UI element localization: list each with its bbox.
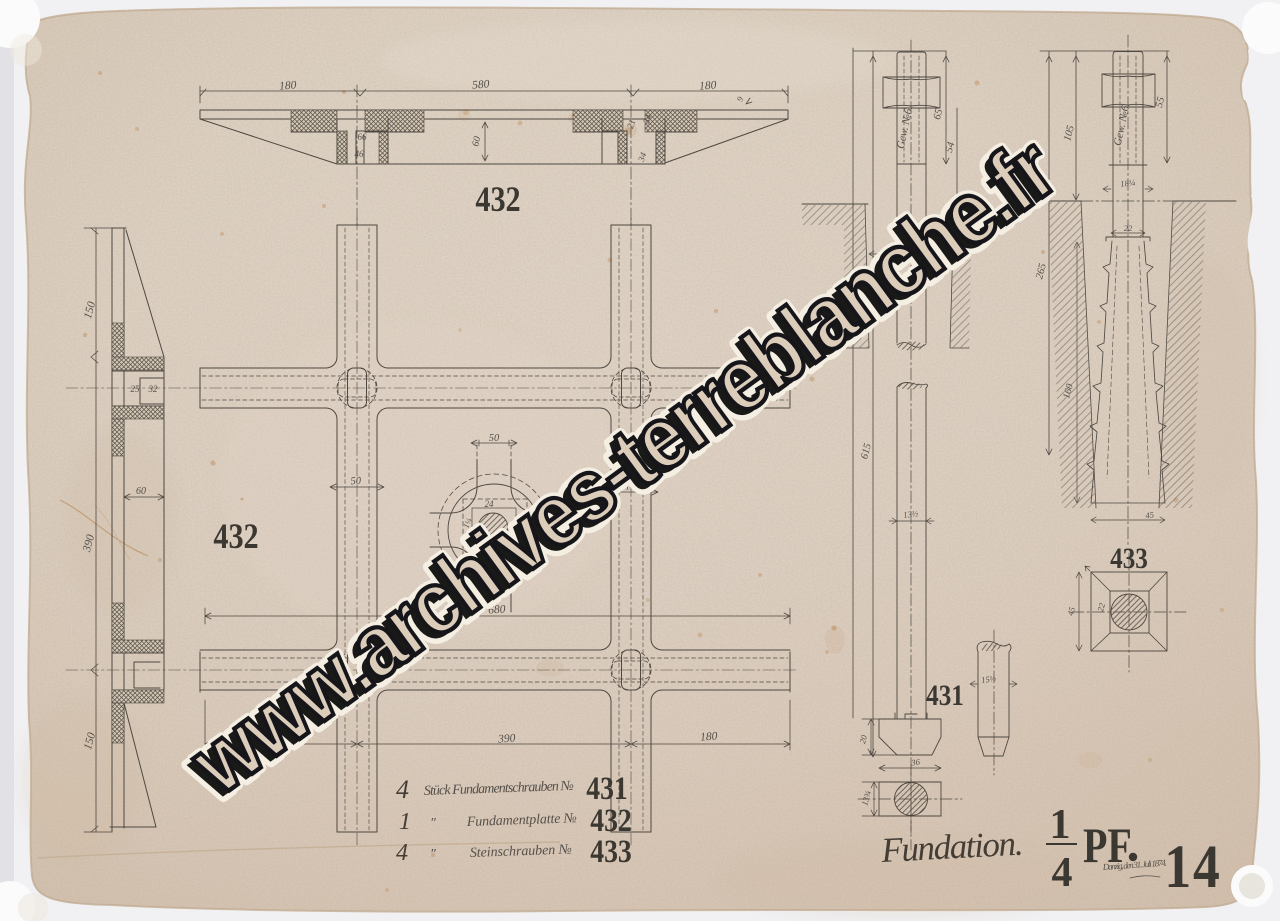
svg-text:180: 180 xyxy=(279,79,297,92)
svg-text:45: 45 xyxy=(1145,509,1155,520)
svg-text:15½: 15½ xyxy=(981,673,998,685)
svg-text:432: 432 xyxy=(475,180,520,220)
svg-text:″: ″ xyxy=(430,847,436,862)
svg-text:50: 50 xyxy=(350,476,362,488)
svg-text:4: 4 xyxy=(396,840,408,866)
svg-text:1: 1 xyxy=(1050,802,1071,848)
svg-text:66: 66 xyxy=(358,132,368,142)
svg-text:32: 32 xyxy=(148,384,159,394)
svg-text:″: ″ xyxy=(430,816,436,831)
svg-text:180: 180 xyxy=(699,79,717,92)
svg-text:25: 25 xyxy=(131,384,141,394)
svg-text:Fundation.: Fundation. xyxy=(879,824,1024,870)
svg-text:60: 60 xyxy=(136,486,146,497)
svg-text:390: 390 xyxy=(497,732,516,745)
svg-text:580: 580 xyxy=(472,78,490,91)
svg-text:433: 433 xyxy=(590,833,632,870)
svg-text:13½: 13½ xyxy=(903,508,919,520)
svg-text:431: 431 xyxy=(926,678,964,712)
svg-text:50: 50 xyxy=(489,433,500,444)
svg-text:432: 432 xyxy=(213,517,258,557)
svg-text:18¼: 18¼ xyxy=(1120,177,1136,189)
svg-text:4: 4 xyxy=(396,775,409,804)
svg-text:46: 46 xyxy=(355,149,365,159)
svg-text:4: 4 xyxy=(1052,850,1073,896)
svg-text:14: 14 xyxy=(1164,834,1221,901)
svg-text:180: 180 xyxy=(700,730,718,743)
svg-text:22: 22 xyxy=(1124,223,1133,233)
svg-text:1: 1 xyxy=(399,809,411,835)
